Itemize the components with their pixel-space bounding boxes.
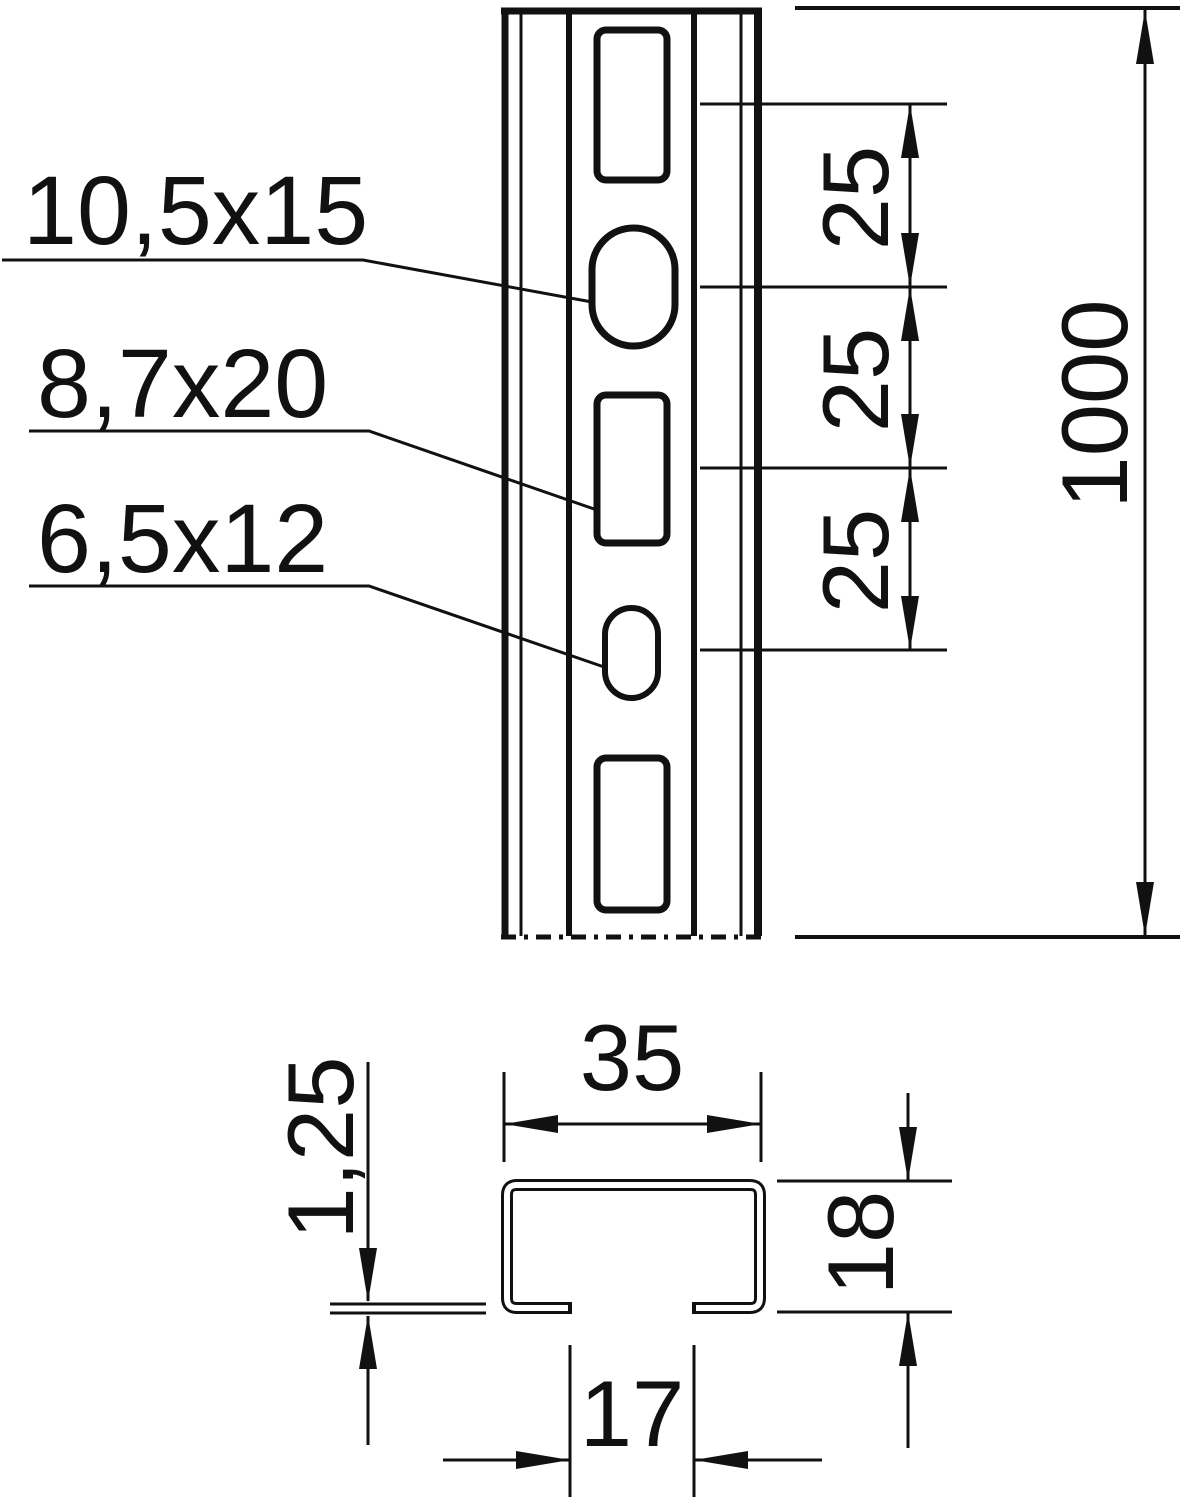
hole-label-leaders	[2, 260, 607, 668]
rail-slots	[592, 30, 675, 910]
slot-obround-small	[605, 608, 658, 698]
height-arrow-down	[899, 1127, 917, 1181]
slot-rect-bottom	[597, 758, 667, 910]
width-dim-text: 35	[580, 1005, 685, 1110]
slot-rect-top	[597, 30, 667, 180]
pitch-dim-text-3: 25	[803, 509, 908, 614]
height-dimension: 18	[777, 1093, 952, 1448]
width-dimension: 35	[504, 1005, 761, 1162]
length-dim-text: 1000	[1042, 299, 1147, 508]
pitch-dimensions: 25 25 25	[700, 104, 947, 650]
opening-dimension: 17	[443, 1345, 822, 1497]
width-arrow-right	[707, 1115, 761, 1133]
opening-arrow-left	[694, 1451, 748, 1469]
width-arrow-left	[504, 1115, 558, 1133]
opening-dim-text: 17	[580, 1361, 685, 1466]
label-10-5x15: 10,5x15	[23, 156, 368, 265]
slot-rect-middle	[597, 395, 667, 543]
opening-arrow-right	[516, 1451, 570, 1469]
pitch-dim-text-2: 25	[803, 328, 908, 433]
rail-technical-drawing: 10,5x15 8,7x20 6,5x12 25 25 25	[0, 0, 1183, 1500]
slot-obround-large	[592, 228, 675, 346]
pitch-dim-text-1: 25	[803, 146, 908, 251]
height-arrow-up	[899, 1312, 917, 1366]
height-dim-text: 18	[808, 1191, 913, 1296]
label-6-5x12: 6,5x12	[37, 484, 328, 593]
thickness-dim-text: 1,25	[268, 1057, 373, 1240]
thickness-arrow-down	[359, 1248, 377, 1302]
thickness-arrow-up	[359, 1315, 377, 1369]
length-arrow-up	[1136, 10, 1154, 64]
front-view: 10,5x15 8,7x20 6,5x12 25 25 25	[2, 8, 1180, 937]
rail-outline	[501, 8, 762, 937]
profile-sheet-core	[507, 1185, 760, 1308]
label-8-7x20: 8,7x20	[37, 329, 328, 438]
length-arrow-down	[1136, 882, 1154, 936]
thickness-dimension: 1,25	[268, 1057, 486, 1445]
profile-sheet-outline	[507, 1185, 760, 1308]
drawing-canvas: 10,5x15 8,7x20 6,5x12 25 25 25	[0, 0, 1183, 1500]
section-view: 35 1,25 18	[268, 1005, 952, 1497]
